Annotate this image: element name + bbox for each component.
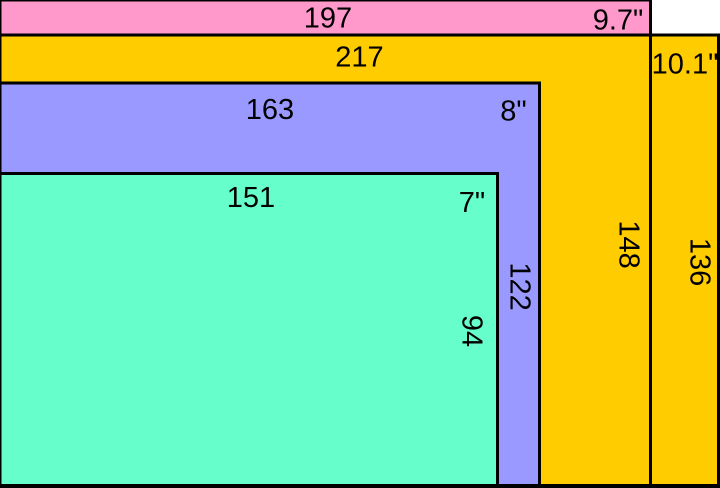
svg-text:136: 136 (684, 238, 716, 286)
svg-text:217: 217 (335, 42, 383, 74)
svg-text:8": 8" (500, 96, 526, 128)
svg-text:122: 122 (504, 262, 536, 310)
svg-text:163: 163 (246, 94, 294, 126)
svg-text:10.1": 10.1" (652, 49, 719, 81)
svg-text:151: 151 (227, 182, 275, 214)
svg-text:94: 94 (456, 315, 488, 347)
svg-text:7": 7" (459, 187, 485, 219)
svg-text:148: 148 (613, 220, 645, 268)
svg-text:197: 197 (304, 3, 352, 35)
svg-text:9.7": 9.7" (593, 4, 644, 36)
